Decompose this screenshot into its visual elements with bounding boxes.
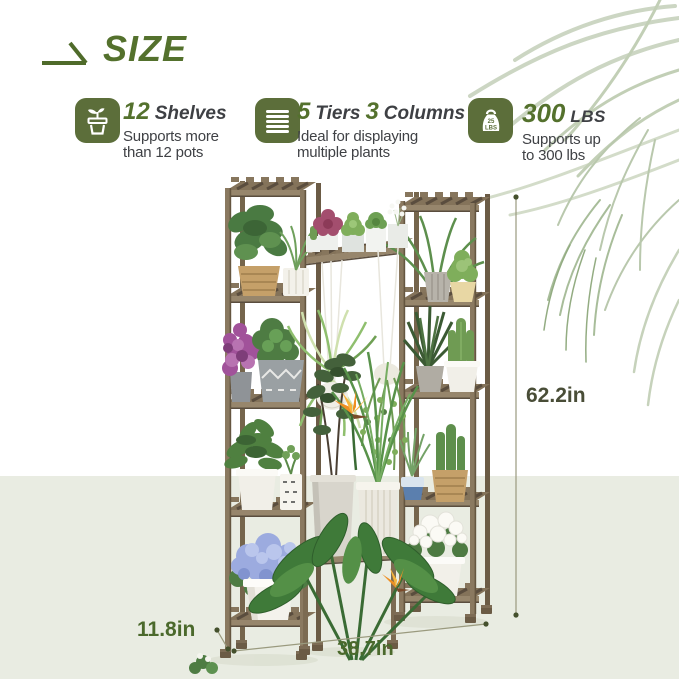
feature-capacity-title: 300 LBS [522,98,606,129]
feature-capacity: 25 LBS 300 LBS Supports up to 300 lbs [468,98,668,178]
feature-capacity-number: 300 [522,98,565,129]
feature-shelves-number: 12 [123,98,150,126]
feature-tiers-number: 5 [297,98,310,126]
swoosh-arrow-icon [40,38,92,68]
feature-tiers-columns: 5 Tiers 3 Columns Ideal for displaying m… [255,98,455,178]
feature-shelves: 12 Shelves Supports more than 12 pots [75,98,275,178]
feature-columns-word: Columns [384,103,465,125]
feature-capacity-word: LBS [570,107,606,127]
stacked-tiers-icon [255,98,300,143]
feature-tiers-title: 5 Tiers 3 Columns [297,98,465,126]
plants [189,200,484,675]
dimension-height-line [513,194,518,617]
feature-capacity-description: Supports up to 300 lbs [522,132,606,164]
succulent-row [306,200,408,253]
leafy-plant-white-pot [223,416,302,510]
rosemary-and-cacti-basket [400,424,468,502]
feature-tiers-word: Tiers [315,103,360,125]
weight-icon-text-25: 25 [488,119,495,125]
width-dimension-label: 38.7in [337,638,394,661]
weight-icon: 25 LBS [468,98,513,143]
purple-plant-and-gray-pot [222,318,304,402]
size-infographic: SIZE 12 Shelves Supports more than 12 po… [0,0,679,679]
feature-tiers-description: Ideal for displaying multiple plants [297,129,465,161]
feature-columns-number: 3 [365,98,378,126]
feature-shelves-title: 12 Shelves [123,98,227,126]
feature-shelves-word: Shelves [155,103,227,125]
weight-icon-text-lbs: LBS [485,126,497,132]
height-dimension-label: 62.2in [526,384,586,408]
palm-leaves-decoration [470,0,679,405]
small-bottom-plant [189,653,218,674]
plant-pot-sprout-icon [75,98,120,143]
feature-shelves-description: Supports more than 12 pots [123,129,227,161]
page-title: SIZE [103,28,187,70]
depth-dimension-label: 11.8in [137,618,195,642]
